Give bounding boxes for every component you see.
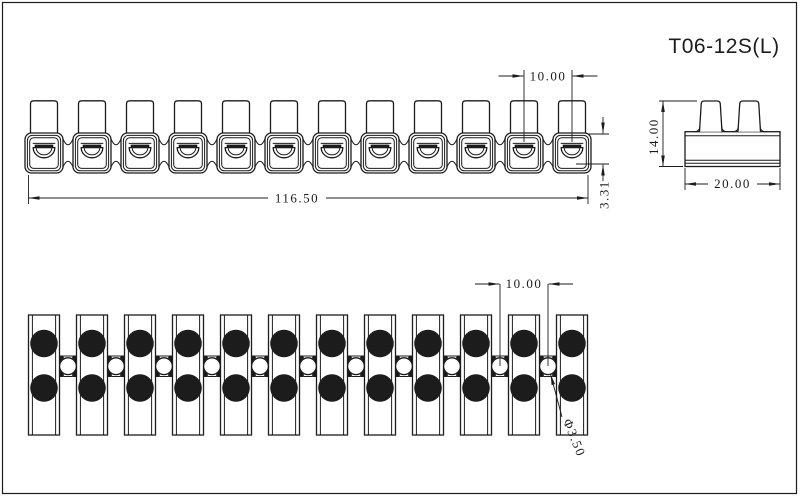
web-connector (447, 139, 457, 167)
web-connector (63, 139, 73, 167)
web-connector (495, 139, 505, 167)
web-connector (399, 139, 409, 167)
terminal-unit (73, 101, 121, 173)
mount-link-unit (348, 356, 365, 378)
terminal-unit (361, 101, 409, 173)
terminal-unit (505, 101, 553, 173)
mount-hole (156, 358, 173, 375)
dim-front-pitch-value: 10.00 (530, 69, 567, 84)
web-connector (303, 139, 313, 167)
terminal-unit (457, 101, 505, 173)
segment-unit (125, 315, 156, 435)
side-view: 14.00 20.00 (646, 101, 780, 191)
mount-hole (396, 358, 413, 375)
segment-unit (77, 315, 108, 435)
top-view: 10.00 Φ3.50 (29, 276, 590, 459)
segment-unit (269, 315, 300, 435)
web-connector (111, 139, 121, 167)
mount-hole (252, 358, 269, 375)
segment-unit (221, 315, 252, 435)
terminal-unit (409, 101, 457, 173)
drawing-title: T06-12S(L) (668, 35, 779, 58)
mount-link-unit (252, 356, 269, 378)
mount-hole (60, 358, 77, 375)
mount-link-unit (60, 356, 77, 378)
dim-front-offset-value: 3.31 (597, 180, 612, 209)
terminal-unit (217, 101, 265, 173)
mount-hole (300, 358, 317, 375)
segment-unit (413, 315, 444, 435)
web-connector (351, 139, 361, 167)
web-connector (255, 139, 265, 167)
terminal-unit (121, 101, 169, 173)
segment-unit (365, 315, 396, 435)
mount-link-unit (396, 356, 413, 378)
side-tower (700, 101, 723, 132)
segment-unit (509, 315, 540, 435)
dim-side-width: 20.00 (685, 168, 780, 191)
mount-hole (108, 358, 125, 375)
segment-unit (173, 315, 204, 435)
web-connector (207, 139, 217, 167)
drawing-sheet: T06-12S(L) (0, 0, 800, 500)
segment-unit (317, 315, 348, 435)
mount-hole (444, 358, 461, 375)
front-terminal-row (25, 101, 591, 173)
web-connector (159, 139, 169, 167)
terminal-unit (313, 101, 361, 173)
mount-hole (348, 358, 365, 375)
dim-front-overall-value: 116.50 (275, 191, 319, 206)
dim-side-height-value: 14.00 (646, 118, 661, 155)
segment-unit (461, 315, 492, 435)
side-body (685, 132, 780, 167)
side-tower (738, 101, 761, 132)
dim-side-width-value: 20.00 (714, 176, 751, 191)
mount-hole (204, 358, 221, 375)
technical-drawing: T06-12S(L) (0, 0, 800, 500)
terminal-unit (265, 101, 313, 173)
mount-link-unit (156, 356, 173, 378)
terminal-unit (169, 101, 217, 173)
drawing-frame (3, 3, 797, 494)
front-view: 10.00 116.50 3.31 (25, 69, 612, 210)
segment-unit (29, 315, 60, 435)
terminal-unit (25, 101, 73, 173)
web-connector (543, 139, 553, 167)
mount-link-unit (300, 356, 317, 378)
top-segment-row (29, 315, 588, 435)
dim-front-overall: 116.50 (29, 175, 589, 206)
mount-link-unit (108, 356, 125, 378)
dim-top-pitch-value: 10.00 (506, 276, 543, 291)
mount-link-unit (444, 356, 461, 378)
mount-link-unit (204, 356, 221, 378)
